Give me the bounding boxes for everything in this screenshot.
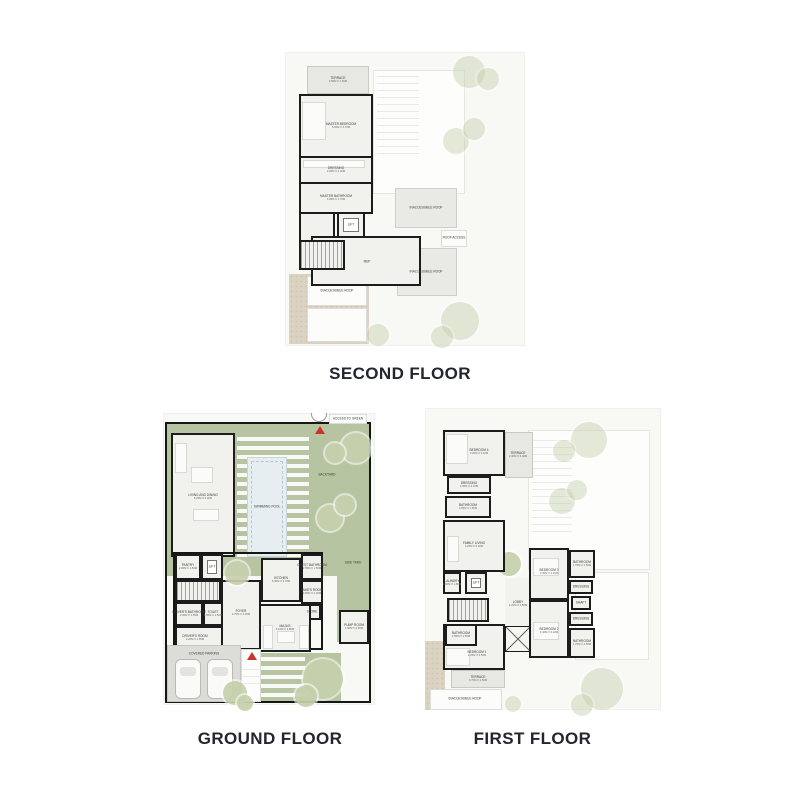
room-label: GUEST BATHROOM 2.55M X 1.50M (297, 563, 327, 571)
room-label: MEP (364, 260, 371, 264)
sofa (263, 625, 273, 649)
room-label: LAUNDRY 1.60M X 1.80M (443, 579, 461, 587)
room-label: PANTRY 2.00M X 1.50M (179, 563, 197, 571)
room-label: MASTER BEDROOM 5.95M X 4.70M (326, 122, 356, 130)
void-bridge (505, 626, 531, 652)
area-name: ACCESS TO GREEN (333, 417, 363, 420)
room-dims: 1.60M X 1.80M (443, 583, 461, 587)
room-dims: 4.25M X 3.50M (468, 654, 487, 658)
room-label: FOYER 2.70M X 4.00M (232, 609, 250, 617)
roof-slats (377, 76, 419, 156)
room-dims: 1.70M X 2.80M (573, 564, 591, 568)
tree (571, 422, 607, 458)
room-dims: 2.50M X 1.55M (452, 635, 470, 639)
stairs (175, 580, 221, 602)
area-label: SWIMMING POOL (254, 505, 280, 509)
tree (335, 495, 355, 515)
room-label: PUMP ROOM 1.80M X 2.80M (344, 623, 364, 631)
room-label: DRESSING (573, 585, 589, 589)
sofa (299, 625, 309, 649)
room-label: DRIVER'S ROOM 3.20M X 1.55M (182, 634, 207, 642)
ground-floor-plan: ACCESS TO GREEN BACKYARD SWIMMING POOL L… (163, 413, 375, 705)
room-label: ROOF ACCESS (443, 236, 466, 240)
room-name: ROOF ACCESS (443, 236, 466, 239)
car (175, 659, 201, 699)
area-name: INACCESSIBLE ROOF (449, 697, 482, 700)
room-label: INACCESSIBLE ROOF (321, 289, 354, 293)
room-dims: 3.50M X 1.50M (329, 80, 347, 84)
room-dims: 8.25M X 6.00M (188, 497, 218, 501)
room-dims: 5.40M X 3.70M (272, 580, 290, 584)
tree (367, 324, 389, 346)
bed (302, 102, 326, 140)
tree (225, 561, 249, 585)
tree (325, 443, 345, 463)
room-dims: 3.00M X 2.00M (301, 592, 322, 596)
room-name: SHAFT (576, 601, 586, 604)
room-dims: 3.25M X 5.20M (463, 545, 485, 549)
room-label: INACCESSIBLE ROOF (410, 206, 443, 210)
area-label: INACCESSIBLE ROOF (449, 697, 482, 701)
room-label: INACCESSIBLE ROOF (410, 270, 443, 274)
stairs (447, 598, 489, 622)
room-label: MAID'S ROOM 3.00M X 2.00M (301, 588, 322, 596)
room-dims: 2.95M X 2.20M (327, 170, 345, 174)
room-label: TERRACE 3.70M X 1.50M (469, 675, 487, 683)
room-name: INACCESSIBLE ROOF (410, 270, 443, 273)
area-name: COVERED PARKING (189, 652, 219, 655)
room-dims: 1.70M X 2.80M (573, 643, 591, 647)
room-label: FAMILY LIVING 3.25M X 5.20M (463, 541, 485, 549)
room-label: MAJLIS 5.10M X 3.80M (276, 624, 294, 632)
room-dims: 2.00M X 1.55M (172, 614, 205, 618)
tree (553, 440, 575, 462)
room-dims: 1.80M X 2.80M (344, 627, 364, 631)
tree (505, 696, 521, 712)
room-dims: 2.55M X 1.50M (297, 567, 327, 571)
room-label: TERRACE 3.50M X 1.50M (329, 76, 347, 84)
room-name: MEP (364, 260, 371, 263)
sofa (175, 443, 187, 473)
area-name: SIDE YARD (345, 561, 362, 564)
room-name: LIFT (209, 565, 215, 568)
room-label: LIVING AND DINING 8.25M X 6.00M (188, 493, 218, 501)
rug (191, 467, 213, 483)
room-dims: 3.20M X 3.40M (470, 452, 489, 456)
room-name: DRESSING (573, 585, 589, 588)
room-label: BEDROOM 4 3.20M X 3.40M (470, 448, 489, 456)
room-label: BEDROOM 3 3.40M X 4.20M (540, 568, 559, 576)
area-name: SWIMMING POOL (254, 505, 280, 508)
room-name: STORE (307, 610, 318, 613)
room-dims: 3.40M X 4.20M (540, 631, 559, 635)
roof-area (307, 308, 367, 342)
room-dims: 2.30M X 3.00M (509, 455, 527, 459)
room-label: MASTER BATHROOM 3.95M X 2.70M (320, 194, 352, 202)
area-name: BACKYARD (318, 473, 335, 476)
second-floor-title: SECOND FLOOR (300, 364, 500, 384)
room-label: DRESSING 2.95M X 2.20M (460, 481, 478, 489)
table (277, 631, 295, 643)
room-name: LIFT (348, 223, 354, 226)
room-dims: 3.40M X 4.20M (540, 572, 559, 576)
room-label: DRESSING (573, 617, 589, 621)
room-dims: 2.70M X 4.00M (232, 613, 250, 617)
room-label: LOBBY 2.20M X 2.80M (509, 600, 527, 608)
area-label: ACCESS TO GREEN (333, 417, 363, 421)
room-label: LIFT (209, 565, 215, 569)
room-dims: 2.20M X 2.80M (509, 604, 527, 608)
room-dims: 3.95M X 2.70M (320, 198, 352, 202)
bed (446, 648, 470, 666)
room-dims: 5.10M X 3.80M (276, 628, 294, 632)
stairs (299, 240, 345, 270)
room-label: LIFT (348, 223, 354, 227)
tree (431, 326, 453, 348)
ground-floor-title: GROUND FLOOR (165, 729, 375, 749)
tree (237, 695, 253, 711)
room-dims: 2.95M X 1.80M (459, 507, 477, 511)
tree (463, 118, 485, 140)
entry-marker-icon (247, 652, 257, 660)
room-dims: 2.00M X 1.50M (179, 567, 197, 571)
room-name: LIFT (473, 581, 479, 584)
room-dims: 3.20M X 1.55M (182, 638, 207, 642)
room-label: BATHROOM 1.70M X 2.80M (573, 560, 591, 568)
room-label: KITCHEN 5.40M X 3.70M (272, 576, 290, 584)
first-floor-plan: BEDROOM 4 3.20M X 3.40M TERRACE 2.30M X … (425, 408, 661, 710)
tree (477, 68, 499, 90)
room-label: DRIVER'S BATHROOM 2.00M X 1.55M (172, 610, 205, 618)
tree (567, 480, 587, 500)
room-label: STORE (307, 610, 318, 614)
room-label: BATHROOM 2.50M X 1.55M (452, 631, 470, 639)
entry-marker-icon (315, 426, 325, 434)
area-label: SIDE YARD (345, 561, 362, 565)
room-dims: 3.70M X 1.50M (469, 679, 487, 683)
first-floor-title: FIRST FLOOR (430, 729, 635, 749)
room-name: DRESSING (573, 617, 589, 620)
room-label: BEDROOM 2 3.40M X 4.20M (540, 627, 559, 635)
room-label: BATHROOM 1.70M X 2.80M (573, 639, 591, 647)
bed (446, 434, 468, 464)
second-floor-plan: TERRACE 3.50M X 1.50M MASTER BEDROOM 5.9… (285, 52, 525, 346)
area-label: BACKYARD (318, 473, 335, 477)
room-dims: 5.95M X 4.70M (326, 126, 356, 130)
room-dims: 2.00M X 1.50M (204, 614, 222, 618)
room-label: BEDROOM 1 4.25M X 3.50M (468, 650, 487, 658)
room-name: INACCESSIBLE ROOF (410, 206, 443, 209)
room-name: INACCESSIBLE ROOF (321, 289, 354, 292)
room-label: TERRACE 2.30M X 3.00M (509, 451, 527, 459)
entry-steps (242, 669, 260, 687)
room-label: LIFT (473, 581, 479, 585)
room-dims: 2.95M X 2.20M (460, 485, 478, 489)
room-label: SHAFT (576, 601, 586, 605)
tree (571, 694, 593, 716)
sofa (447, 536, 459, 562)
tree (295, 685, 317, 707)
room-label: DRESSING 2.95M X 2.20M (327, 166, 345, 174)
area-label: COVERED PARKING (189, 652, 219, 656)
room-label: BATHROOM 2.95M X 1.80M (459, 503, 477, 511)
page: TERRACE 3.50M X 1.50M MASTER BEDROOM 5.9… (0, 0, 800, 800)
dining-table (193, 509, 219, 521)
room-label: TOILET 2.00M X 1.50M (204, 610, 222, 618)
tree (341, 433, 371, 463)
